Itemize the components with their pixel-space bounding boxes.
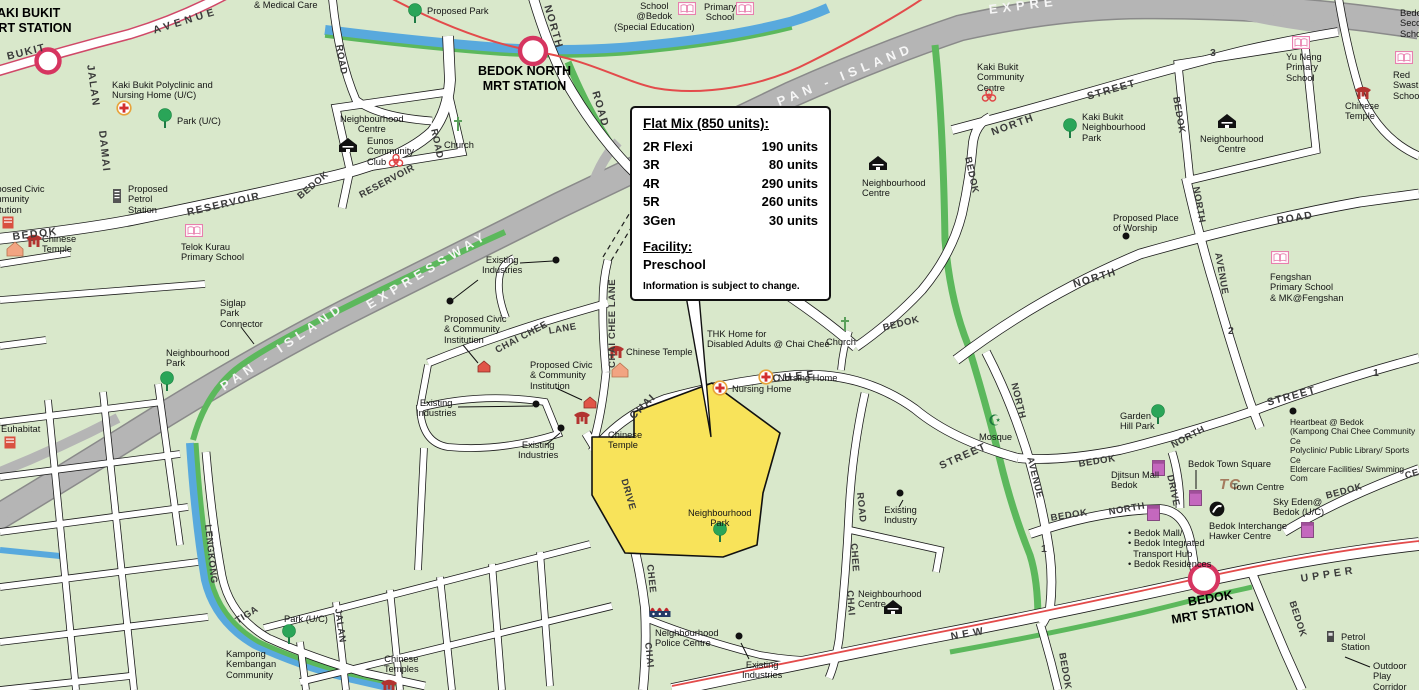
place-label-heartbeat: Heartbeat @ Bedok (Kampong Chai Chee Com… — [1290, 418, 1419, 484]
place-label-chinese-temple: Chinese Temple — [608, 430, 642, 451]
place-label-bedok-interchange: Bedok Interchange Hawker Centre — [1209, 521, 1287, 542]
place-label-neighbourhood-park: Neighbourhood Park — [688, 508, 752, 529]
flat-type: 5R — [643, 193, 660, 211]
place-label-kaki-bukit-cc: Kaki Bukit Community Centre — [977, 62, 1024, 93]
place-label-chinese-temple: Chinese Temple — [626, 347, 693, 357]
place-label-proposed-civic-2: Proposed Civic & Community Institution — [530, 360, 593, 391]
place-label-telok-kurau: Telok Kurau Primary School — [181, 242, 244, 263]
place-label-police-centre: Neighbourhood Police Centre — [655, 628, 719, 649]
primary-school-icon — [737, 3, 754, 15]
place-label-yu-neng: Yu Neng Primary School — [1286, 52, 1322, 83]
flat-type: 4R — [643, 175, 660, 193]
flat-units: 80 units — [769, 156, 818, 174]
road-label-2: 2 — [1228, 326, 1235, 338]
place-label-existing-industries: Existing Industries — [518, 440, 558, 461]
flat-units: 190 units — [762, 138, 818, 156]
place-label-bedok-town-square: Bedok Town Square — [1188, 459, 1271, 469]
road-label-1: 1 — [1041, 544, 1048, 556]
place-label-neighbourhood-centre: Neighbourhood Centre — [862, 178, 926, 199]
place-label-chinese-temple: Chinese Temple — [1345, 101, 1379, 122]
bedok-mall-icon — [1148, 506, 1160, 521]
bedok-interchange-icon — [1210, 502, 1225, 517]
proposed-petrol-icon — [113, 189, 121, 203]
place-label-proposed-civic: Proposed Civic Community Institution — [0, 184, 45, 215]
flat-type: 3Gen — [643, 212, 676, 230]
place-label-kaki-bukit-polyclinic: Kaki Bukit Polyclinic and Nursing Home (… — [112, 80, 213, 101]
nursing-home-cross-icon — [713, 381, 727, 395]
flat-type: 3R — [643, 156, 660, 174]
flat-mix-row: 3R 80 units — [643, 156, 818, 174]
mosque-icon — [988, 412, 1001, 430]
place-label-park-uc: Park (U/C) — [177, 116, 221, 126]
place-label-proposed-civic-1: Proposed Civic & Community Institution — [444, 314, 507, 345]
place-label-town-centre: Town Centre — [1232, 482, 1284, 492]
flat-type: 2R Flexi — [643, 138, 693, 156]
road-label-1: 1 — [1373, 368, 1380, 380]
place-label-chinese-temples: Chinese Temples — [384, 654, 419, 675]
place-label-djitsun: Djitsun Mall Bedok — [1111, 470, 1159, 491]
place-label-siglap: Siglap Park Connector — [220, 298, 263, 329]
place-label-thk-home: THK Home for Disabled Adults @ Chai Chee — [707, 329, 830, 350]
place-label-church: Church — [444, 140, 474, 150]
place-label-proposed-park: Proposed Park — [427, 6, 489, 16]
place-label-neighbourhood-park: Neighbourhood Park — [166, 348, 230, 369]
flat-mix-row: 3Gen 30 units — [643, 212, 818, 230]
place-label-sky-eden: Sky Eden@ Bedok (U/C) — [1273, 497, 1324, 518]
flat-mix-row: 5R 260 units — [643, 193, 818, 211]
place-label-neighbourhood-centre: Neighbourhood Centre — [1200, 134, 1264, 155]
flat-units: 260 units — [762, 193, 818, 211]
euhabitat-icon — [5, 437, 16, 449]
place-label-existing-industries: Existing Industries — [742, 660, 782, 681]
map-stage: ☪ — [0, 0, 1419, 690]
place-label-chinese-temple: Chinese Temple — [42, 234, 76, 255]
place-label-park-uc: Park (U/C) — [284, 614, 328, 624]
place-label-garden-hill: Garden Hill Park — [1120, 411, 1155, 432]
fengshan-school-icon — [1272, 252, 1289, 264]
kaki-bukit-mrt-label: KAKI BUKIT MRT STATION — [0, 6, 72, 36]
place-label-euhabitat: Euhabitat — [1, 424, 40, 434]
petrol-station-icon — [1327, 631, 1334, 642]
sky-eden-icon — [1302, 523, 1314, 538]
place-label-primary-school: Primary School — [704, 2, 736, 23]
yu-neng-school-icon — [1293, 37, 1310, 49]
place-label-medical-care: & Medical Care — [254, 0, 318, 10]
facility-value: Preschool — [643, 257, 818, 272]
flat-mix-callout: Flat Mix (850 units): 2R Flexi 190 units… — [630, 106, 831, 301]
road-label-chai: CHAI — [641, 642, 654, 669]
civic-community-icon — [3, 217, 14, 229]
place-label-red-swastika: Red Swastika School — [1393, 70, 1419, 101]
place-label-kampong: Kampong Kembangan Community — [226, 649, 276, 680]
road-label-chai-chee-lane: CHAI CHEE LANE — [608, 279, 619, 368]
place-label-school-bedok: School @Bedok (Special Education) — [614, 1, 695, 32]
place-label-kaki-bukit-np: Kaki Bukit Neighbourhood Park — [1082, 112, 1146, 143]
flat-units: 30 units — [769, 212, 818, 230]
nursing-home-cross-icon — [759, 370, 773, 384]
place-label-neighbourhood-centre: Neighbourhood Centre — [858, 589, 922, 610]
polyclinic-cross-icon — [117, 101, 131, 115]
bedok-north-mrt-label: BEDOK NORTH MRT STATION — [478, 64, 571, 94]
flat-mix-title: Flat Mix (850 units): — [643, 116, 818, 131]
place-label-bedok-mall-list: • Bedok Mall/ • Bedok Integrated Transpo… — [1128, 528, 1211, 570]
place-label-fengshan: Fengshan Primary School & MK@Fengshan — [1270, 272, 1344, 303]
place-label-nursing-home: Nursing Home — [778, 373, 837, 383]
red-swastika-school-icon — [1396, 52, 1413, 64]
bedok-town-square-icon — [1190, 491, 1202, 506]
police-centre-icon — [650, 608, 671, 617]
road-label-chai: CHAI — [843, 590, 855, 616]
place-label-bedok-secondary: Bedok Secondary School — [1400, 8, 1419, 39]
road-label-road: ROAD — [853, 492, 867, 523]
place-label-existing-industries: Existing Industries — [482, 255, 522, 276]
place-label-church: Church — [826, 337, 856, 347]
place-label-existing-industry: Existing Industry — [884, 505, 917, 526]
place-label-proposed-worship: Proposed Place of Worship — [1113, 213, 1179, 234]
place-label-nursing-home: Nursing Home — [732, 384, 791, 394]
place-label-eunos-cc: Eunos Community Club — [367, 136, 414, 167]
flat-mix-row: 2R Flexi 190 units — [643, 138, 818, 156]
place-label-mosque: Mosque — [979, 432, 1012, 442]
bedok-north-station-icon — [520, 38, 546, 64]
place-label-petrol-station: Petrol Station — [1341, 632, 1370, 653]
flat-mix-row: 4R 290 units — [643, 175, 818, 193]
place-label-proposed-petrol: Proposed Petrol Station — [128, 184, 168, 215]
place-label-existing-industries: Existing Industries — [416, 398, 456, 419]
telok-kurau-school-icon — [186, 225, 203, 237]
road-label-3: 3 — [1210, 48, 1217, 60]
road-label-chee: CHEE — [643, 564, 657, 594]
place-label-neighbourhood-centre: Neighbourhood Centre — [340, 114, 404, 135]
place-label-outdoor-play: Outdoor Play Corridor — [1373, 661, 1419, 690]
flat-units: 290 units — [762, 175, 818, 193]
road-label-chee: CHEE — [847, 543, 860, 572]
facility-label: Facility: — [643, 239, 818, 254]
disclaimer: Information is subject to change. — [643, 281, 818, 292]
